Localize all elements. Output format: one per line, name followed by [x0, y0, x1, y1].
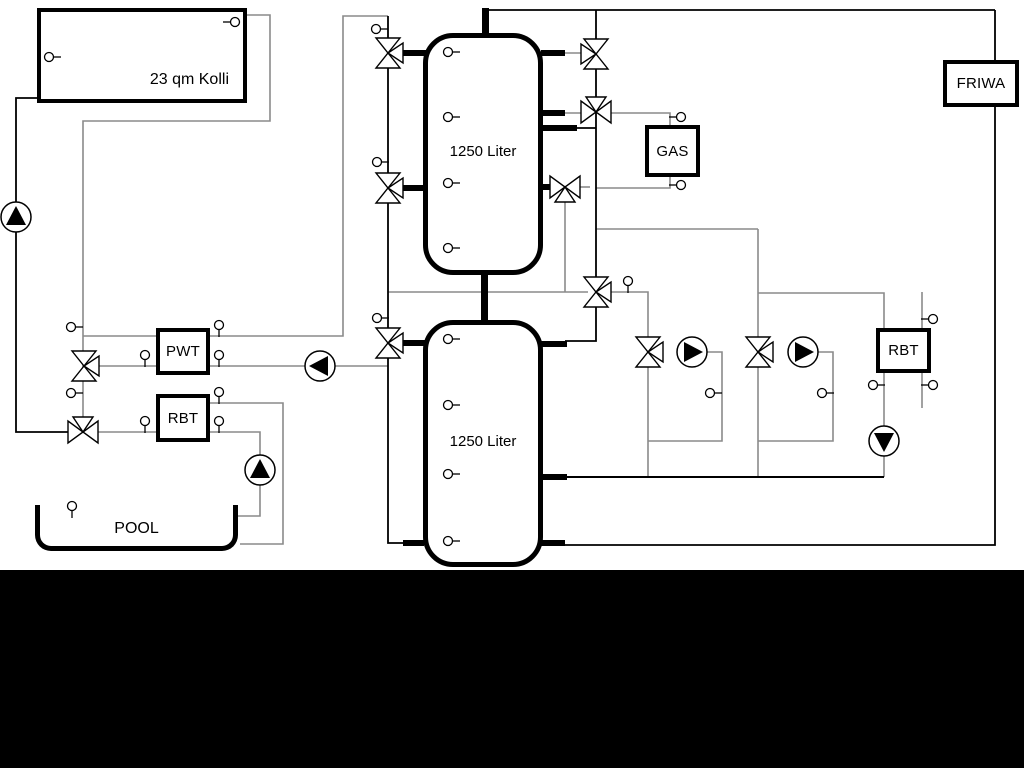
bottom-black-band [0, 570, 1024, 768]
temperature-sensor-icon [869, 381, 886, 390]
temperature-sensor-icon [45, 53, 62, 62]
three-way-valve-icon [584, 277, 611, 307]
temperature-sensor-icon [444, 537, 461, 546]
three-way-valve-icon [376, 173, 403, 203]
three-way-valve-icon [550, 176, 580, 202]
temperature-sensor-icon [215, 321, 224, 338]
three-way-valve-icon [376, 38, 403, 68]
three-way-valve-icon [68, 417, 98, 443]
temperature-sensor-icon [68, 502, 77, 519]
temperature-sensor-icon [141, 417, 150, 434]
temperature-sensor-icon [444, 48, 461, 57]
temperature-sensor-icon [444, 244, 461, 253]
temperature-sensor-icon [669, 181, 686, 190]
pump-icon [788, 337, 818, 367]
three-way-valve-icon [581, 97, 611, 123]
three-way-valves [68, 38, 773, 443]
temperature-sensor-icon [215, 417, 224, 434]
symbols-layer [0, 0, 1024, 570]
temperature-sensor-icon [444, 335, 461, 344]
three-way-valve-icon [72, 351, 99, 381]
temperature-sensor-icon [818, 389, 835, 398]
temperature-sensor-icon [67, 323, 84, 332]
three-way-valve-icon [746, 337, 773, 367]
temperature-sensor-icon [215, 388, 224, 405]
pump-icon [305, 351, 335, 381]
temperature-sensor-icon [921, 315, 938, 324]
three-way-valve-icon [376, 328, 403, 358]
pump-icon [245, 455, 275, 485]
temperature-sensor-icon [223, 18, 240, 27]
three-way-valve-icon [581, 39, 608, 69]
pump-icon [869, 426, 899, 456]
temperature-sensor-icon [373, 314, 390, 323]
temperature-sensor-icon [372, 25, 389, 34]
temperature-sensor-icon [141, 351, 150, 368]
three-way-valve-icon [636, 337, 663, 367]
temperature-sensor-icon [67, 389, 84, 398]
temperature-sensor-icon [373, 158, 390, 167]
schematic-canvas: 23 qm Kolli 1250 Liter 1250 Liter PWT RB… [0, 0, 1024, 768]
pump-icon [1, 202, 31, 232]
temperature-sensor-icon [706, 389, 723, 398]
temperature-sensors [45, 18, 938, 546]
temperature-sensor-icon [669, 113, 686, 122]
temperature-sensor-icon [444, 179, 461, 188]
temperature-sensor-icon [215, 351, 224, 368]
pump-icon [677, 337, 707, 367]
temperature-sensor-icon [624, 277, 633, 294]
temperature-sensor-icon [444, 113, 461, 122]
temperature-sensor-icon [444, 470, 461, 479]
temperature-sensor-icon [444, 401, 461, 410]
temperature-sensor-icon [921, 381, 938, 390]
